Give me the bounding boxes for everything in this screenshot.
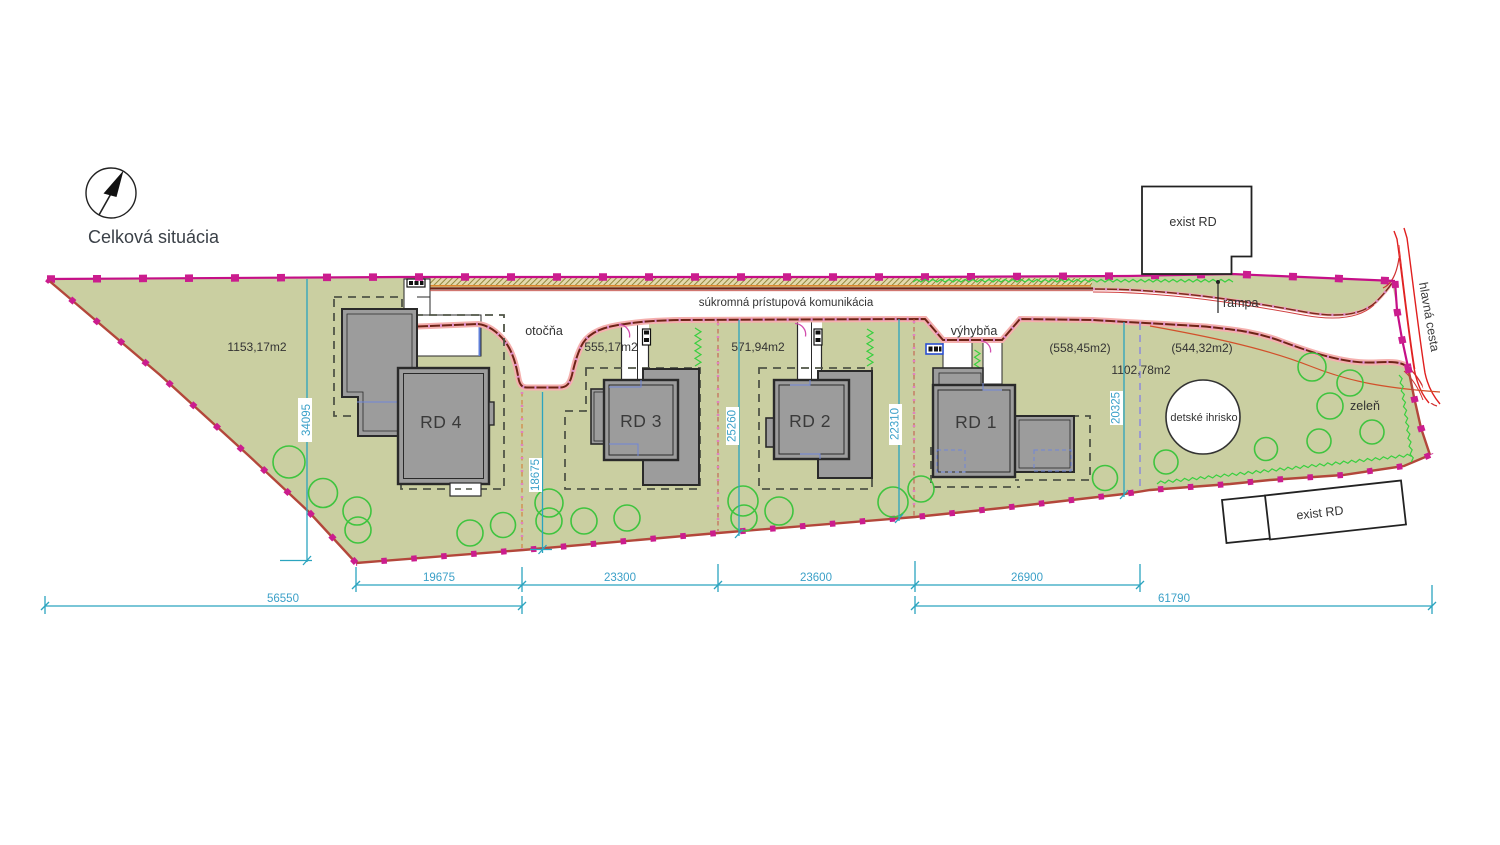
svg-text:19675: 19675 — [423, 572, 455, 584]
svg-text:RD 2: RD 2 — [789, 411, 831, 431]
svg-text:1102,78m2: 1102,78m2 — [1111, 363, 1170, 377]
svg-text:výhybňa: výhybňa — [951, 324, 998, 338]
svg-text:(544,32m2): (544,32m2) — [1171, 341, 1232, 355]
svg-text:otočňa: otočňa — [525, 324, 563, 338]
svg-text:RD 4: RD 4 — [420, 412, 462, 432]
svg-text:23300: 23300 — [604, 572, 636, 584]
svg-text:61790: 61790 — [1158, 593, 1190, 605]
svg-text:22310: 22310 — [890, 408, 902, 440]
svg-text:zeleň: zeleň — [1350, 399, 1380, 413]
svg-text:detské ihrisko: detské ihrisko — [1170, 412, 1237, 424]
svg-text:Celková situácia: Celková situácia — [88, 227, 220, 247]
svg-text:rampa: rampa — [1223, 296, 1258, 310]
svg-text:555,17m2: 555,17m2 — [584, 340, 638, 354]
svg-text:18675: 18675 — [530, 459, 542, 491]
svg-text:26900: 26900 — [1011, 572, 1043, 584]
svg-text:34095: 34095 — [301, 404, 313, 436]
svg-text:20325: 20325 — [1111, 392, 1123, 424]
svg-text:25260: 25260 — [727, 410, 739, 442]
svg-text:exist RD: exist RD — [1169, 215, 1216, 229]
svg-text:(558,45m2): (558,45m2) — [1049, 341, 1110, 355]
svg-text:56550: 56550 — [267, 593, 299, 605]
svg-text:23600: 23600 — [800, 572, 832, 584]
svg-text:1153,17m2: 1153,17m2 — [227, 340, 286, 354]
svg-text:RD 1: RD 1 — [955, 412, 997, 432]
svg-text:súkromná prístupová komunikáci: súkromná prístupová komunikácia — [699, 297, 874, 309]
svg-text:RD 3: RD 3 — [620, 411, 662, 431]
